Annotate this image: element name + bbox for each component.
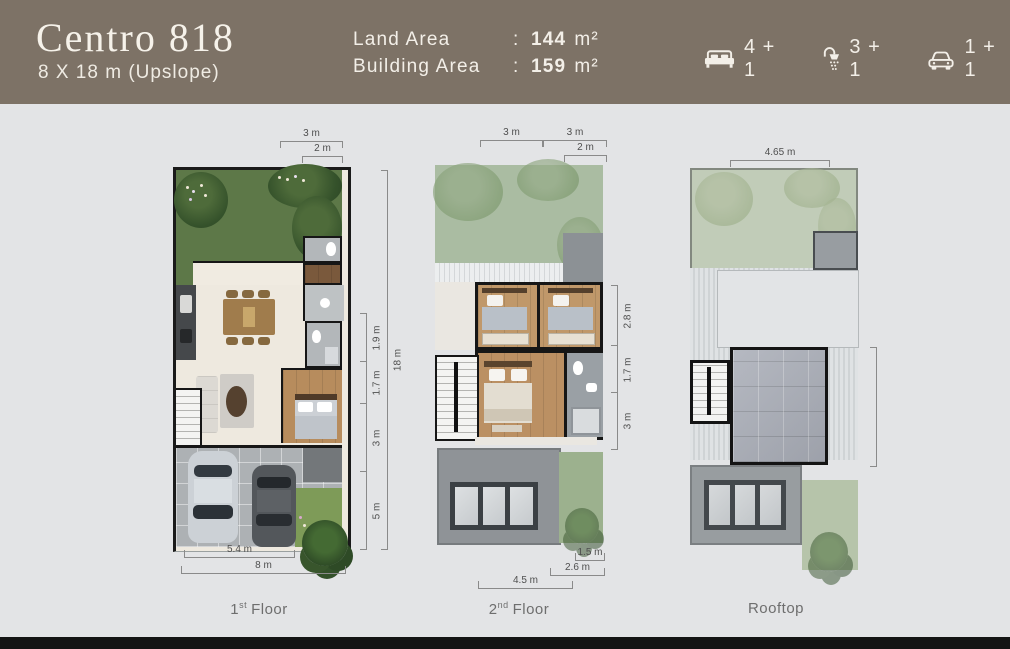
coffee-table [226,386,247,417]
dimension-label: 18 m [393,349,404,371]
sink [586,383,597,392]
car-roof [257,490,291,512]
dimension-label: 4.5 m [478,575,573,586]
pillow [317,402,332,412]
dining-chairs-bottom [226,337,238,345]
toilet [312,330,321,343]
toilet [573,361,583,375]
wall [537,285,540,347]
dimension-label: 3 m [623,413,634,430]
dimension-label: 3 m [543,127,607,138]
dimension: 1.9 m [360,313,367,362]
dimension-label: 4.65 m [730,147,830,158]
dimension: 3 m [480,140,543,147]
land-area-label: Land Area [353,26,513,53]
bench [492,425,522,432]
lower-roof [437,448,561,545]
pillow [553,295,569,306]
garden-patch [802,480,858,570]
brochure-page: Centro 818 8 X 18 m (Upslope) Land Area … [0,0,1010,649]
caption-ordinal: nd [498,600,509,610]
dimension-label: 2 m [564,142,607,153]
stove [180,329,192,343]
bedroom-count-label: 4 + 1 [744,36,789,82]
concrete-patch [813,231,858,270]
bedroom [281,368,342,443]
header-bar: Centro 818 8 X 18 m (Upslope) Land Area … [0,0,1010,104]
pillow [298,402,313,412]
pillow [489,369,505,381]
dimension-label: 1.7 m [623,357,634,382]
caption-word: Floor [251,601,288,618]
plan-caption-first: 1stFloor [189,600,329,618]
skylight [450,482,538,530]
blanket [482,307,527,330]
dimension: 3 m [611,392,618,450]
dimension: 2.8 m [611,285,618,346]
bed [295,394,337,439]
carport-count: 1 + 1 [927,36,1010,82]
blanket [548,307,593,330]
stair-rail [707,367,711,415]
bed-icon [704,49,735,69]
area-specs: Land Area : 144 m² Building Area : 159 m… [353,26,599,80]
page-subtitle: 8 X 18 m (Upslope) [38,62,220,84]
fern-plant [810,532,848,572]
car-roof [194,479,232,503]
dimension-label: 3 m [280,128,343,139]
bathroom [564,353,603,437]
car [188,451,238,543]
building-area-colon: : [513,53,531,80]
headboard [484,361,532,367]
kitchen-counter [176,285,196,360]
plan-caption-second: 2ndFloor [449,600,589,618]
rooftop-terrace [730,347,828,465]
fern-plant [565,508,599,544]
wardrobe [548,333,595,345]
headboard [548,288,593,293]
dimension: 2 m [302,156,343,163]
skylight-pane [510,487,533,525]
dimension: 8 m [181,565,346,574]
powder-room [303,285,344,321]
caption-number: 2 [489,601,498,618]
bush [695,172,753,226]
master-bedroom-block [475,350,603,440]
dimension: 4.5 m [478,580,573,589]
land-area-value: 144 [531,26,566,53]
bedrooms-block [475,282,603,350]
dimension-label: 2 m [302,143,343,154]
dimension: 18 m [381,170,388,550]
caption-number: 1 [230,601,239,618]
skylight-pane [760,485,781,525]
bed-throw [484,409,532,421]
bathroom-count-label: 3 + 1 [849,36,895,82]
windshield [256,514,292,526]
bedroom-count: 4 + 1 [704,36,789,82]
skylight-pane [735,485,756,525]
hallway [475,437,597,445]
carport-count-label: 1 + 1 [964,36,1010,82]
caption-word: Rooftop [748,600,804,617]
dimension: 5 m [360,471,367,550]
wardrobe [482,333,529,345]
bush [517,159,579,201]
caption-word: Floor [513,601,550,618]
shower-icon [821,46,840,73]
page-title: Centro 818 [36,14,235,61]
headboard [482,288,527,293]
wardrobe [303,263,342,285]
staircase [435,355,479,441]
land-area-unit: m² [574,26,599,53]
dining-table [223,299,275,335]
building-area-unit: m² [574,53,599,80]
dimension-label: 2.6 m [550,562,605,573]
feature-summary: 4 + 1 3 + 1 [704,36,1010,82]
floor-plan-rooftop: 4.65 m [690,168,858,570]
caption-ordinal: st [239,600,247,610]
shower-area [325,347,338,364]
dimension: 1.7 m [611,345,618,393]
land-area-colon: : [513,26,531,53]
sink [320,298,330,308]
bed [484,361,532,423]
dimension: 5.4 m [184,549,295,558]
bush [174,172,228,228]
concrete-patch [563,233,603,287]
floor-plan-first: 3 m 2 m 1.9 m 1.7 m 3 m 5 m 18 m 5.4 m 8… [173,167,351,552]
dimension: 4.65 m [730,160,830,167]
bush [433,163,503,221]
bed [482,288,527,330]
sink [180,295,192,313]
rear-window [194,465,232,477]
blanket [295,416,337,439]
bathroom [305,321,342,368]
skylight [704,480,786,530]
building-area-label: Building Area [353,53,513,80]
upper-roof-panel [717,270,859,348]
side-pavement [303,448,342,482]
dimension: 2 m [564,155,607,162]
dimension-label: 2.8 m [623,303,634,328]
table-runner [243,307,255,327]
skylight-pane [455,487,478,525]
skylight-pane [709,485,730,525]
plan-caption-rooftop: Rooftop [706,600,846,617]
dining-chairs-top [226,290,238,298]
car-icon [927,49,955,70]
bathroom-count: 3 + 1 [821,36,895,82]
shower-area [571,407,601,435]
stair-rail [454,362,458,432]
dimension-label: 8 m [181,560,346,571]
windshield [193,505,233,519]
dimension-label: 3 m [480,127,543,138]
garden-patch [559,452,603,543]
flowers [186,186,189,189]
car [252,465,296,547]
dimension: 1.5 m [575,552,605,561]
dimension-label: 5.4 m [184,544,295,555]
pillow [487,295,503,306]
dimension: 3 m [360,403,367,472]
walkway [193,261,303,285]
toilet [326,242,336,256]
dimension: 1.7 m [360,361,367,404]
staircase [176,388,202,445]
building-area-value: 159 [531,53,566,80]
garden-strip [176,263,193,285]
skylight-pane [483,487,506,525]
staircase [690,360,730,424]
bathroom [303,236,342,263]
dimension [870,347,877,467]
lower-roof [690,465,802,545]
mattress [295,400,337,439]
pillow [511,369,527,381]
building-area-row: Building Area : 159 m² [353,53,599,80]
hallway [435,282,475,350]
bed [548,288,593,330]
footer-bar [0,637,1010,649]
floor-plan-second: 3 m 3 m 2 m 2.8 m 1.7 m 3 m 1.5 m 2.6 m … [435,165,603,547]
land-area-row: Land Area : 144 m² [353,26,599,53]
dimension-label: 1.5 m [575,547,605,558]
rear-window [257,477,291,488]
flowers [278,176,281,179]
